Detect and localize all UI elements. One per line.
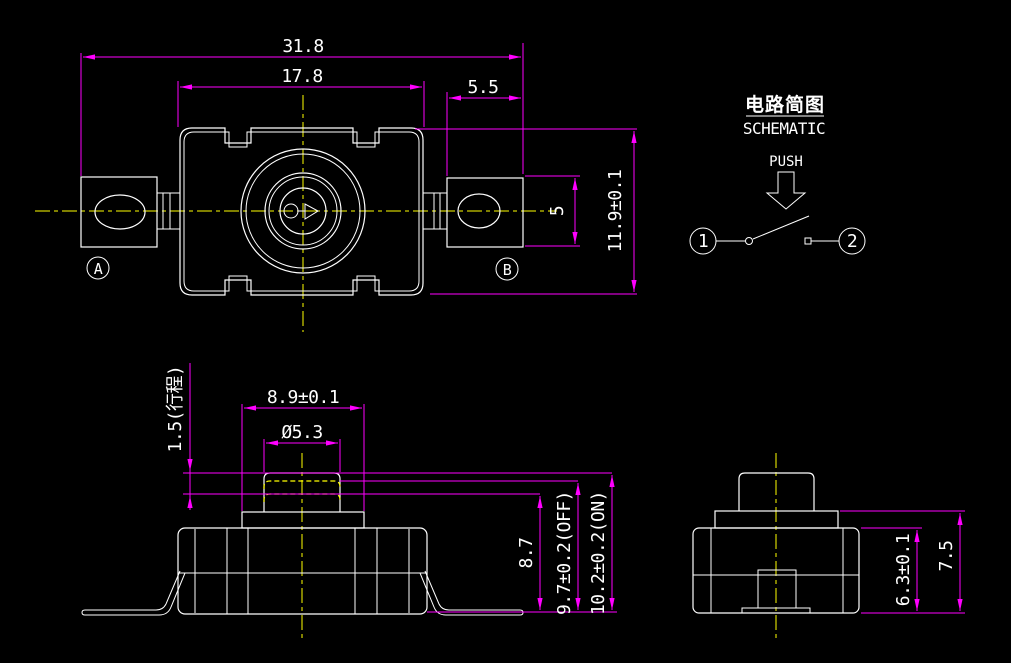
leg-left (82, 571, 185, 615)
dim-off-height: 9.7±0.2(OFF) (554, 491, 575, 615)
dim-pressed-height: 8.7 (516, 537, 537, 568)
terminal-a-hole (95, 195, 145, 229)
dim-total-height: 7.5 (936, 540, 957, 571)
center-terminal-tab (758, 570, 796, 608)
dim-body-height: 6.3±0.1 (893, 534, 914, 606)
contact-pivot (746, 238, 753, 245)
dim-travel: 1.5(行程) (165, 366, 186, 453)
terminal-2-label: 2 (847, 231, 857, 252)
dim-total-width: 31.8 (282, 36, 323, 57)
end-view: 6.3±0.1 7.5 (693, 453, 965, 640)
dim-on-height: 10.2±0.2(ON) (588, 491, 609, 615)
schematic-title-en: SCHEMATIC (743, 119, 825, 138)
dim-body-width: 17.8 (281, 66, 322, 87)
contact-fixed (805, 238, 811, 244)
schematic: 电路简图 SCHEMATIC PUSH 1 2 (690, 93, 865, 254)
push-arrow-icon (767, 172, 805, 209)
push-label: PUSH (769, 154, 803, 170)
switch-arm (753, 216, 809, 239)
terminal-1-label: 1 (698, 231, 708, 252)
cad-drawing-canvas: A B 31.8 17.8 5.5 11.9±0.1 5 电路简图 SCHEMA… (0, 0, 1011, 663)
terminal-b-label: B (503, 261, 512, 279)
dim-button-diameter: Ø5.3 (281, 422, 322, 443)
side-view: 8.9±0.1 Ø5.3 1.5(行程) 8.7 9.7±0.2(OFF) 10… (82, 363, 617, 640)
dim-terminal-height: 5 (547, 206, 568, 216)
leg-right (420, 571, 523, 615)
collar (242, 512, 364, 528)
dim-body-height: 11.9±0.1 (605, 170, 626, 253)
dim-terminal-width: 5.5 (467, 77, 498, 98)
dim-base-width: 8.9±0.1 (267, 387, 339, 408)
schematic-title-cn: 电路简图 (745, 93, 825, 116)
terminal-a-label: A (94, 260, 103, 278)
switch-technical-drawing: A B 31.8 17.8 5.5 11.9±0.1 5 电路简图 SCHEMA… (0, 0, 1011, 663)
top-view: A B 31.8 17.8 5.5 11.9±0.1 5 (35, 36, 637, 332)
